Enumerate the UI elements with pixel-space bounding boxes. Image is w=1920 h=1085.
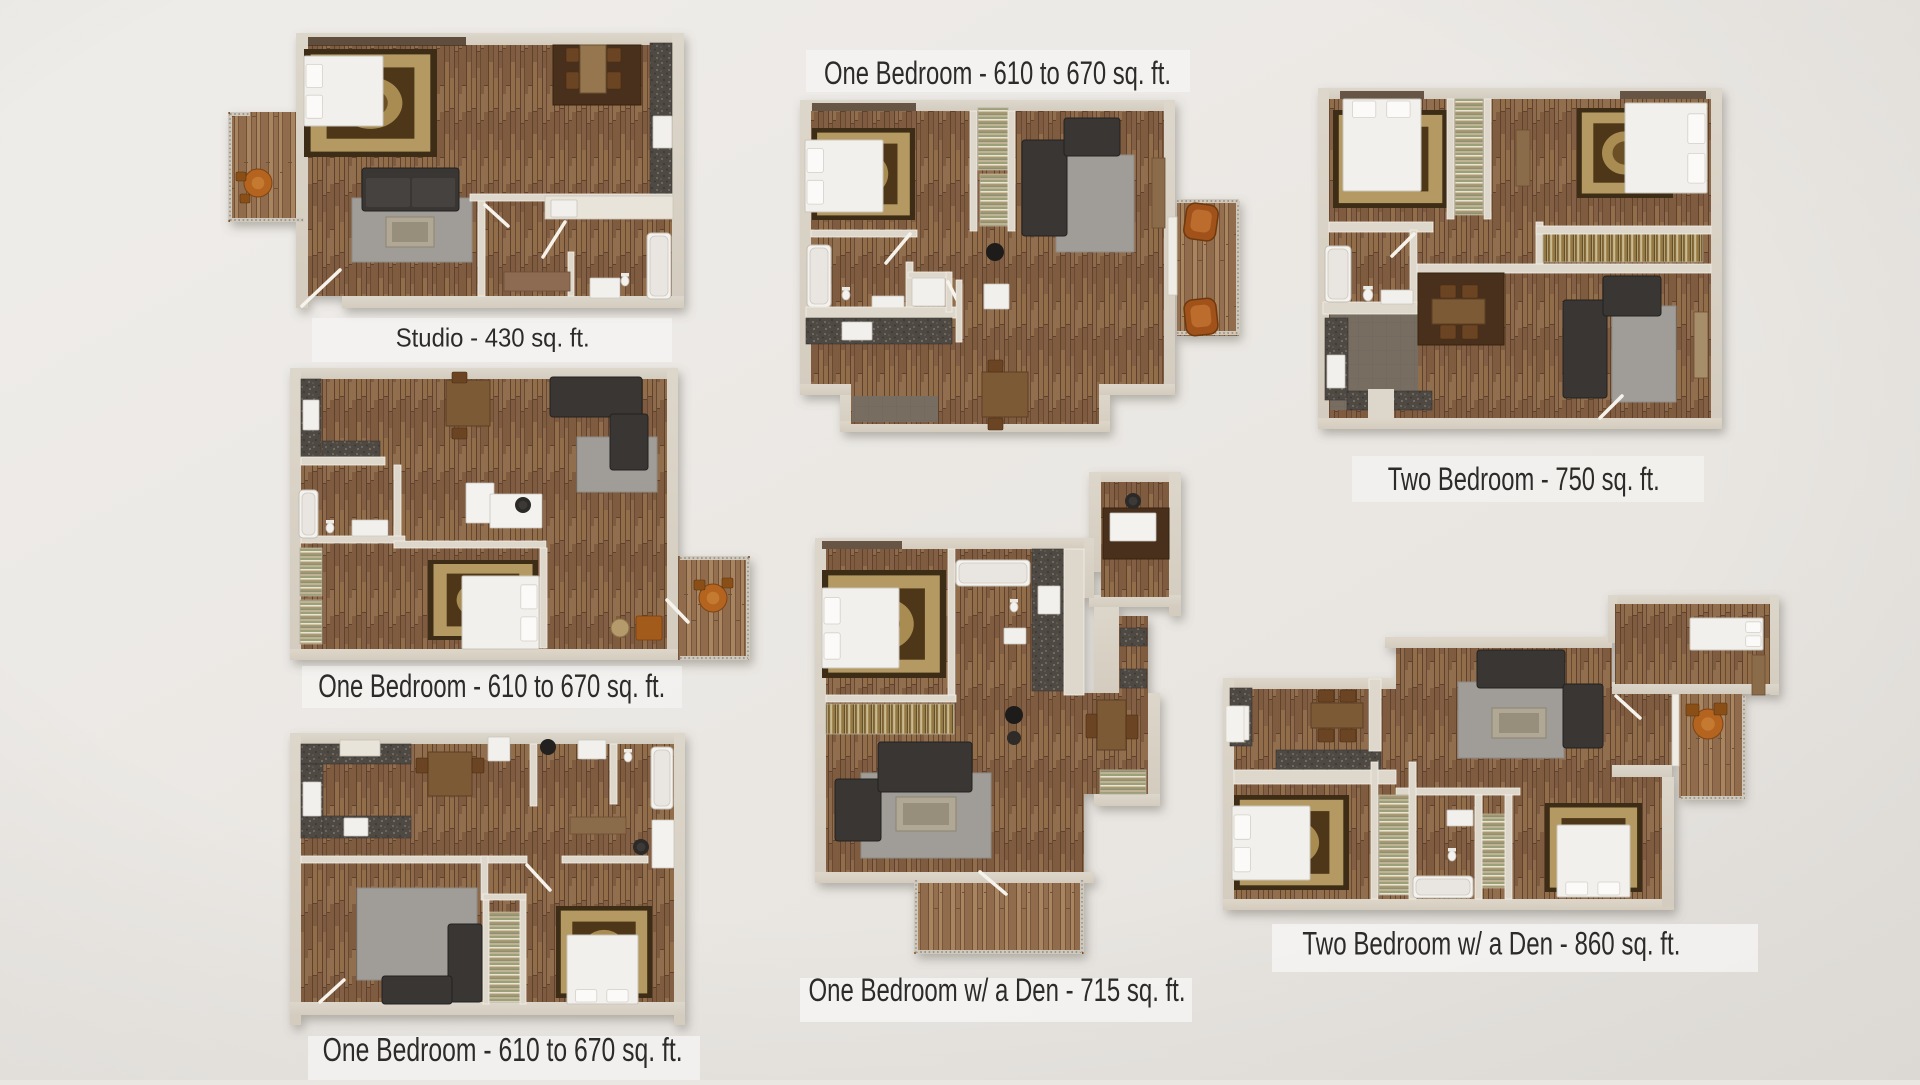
svg-text:One Bedroom - 610 to 670 sq. f: One Bedroom - 610 to 670 sq. ft. — [824, 55, 1171, 91]
svg-text:One Bedroom - 610 to 670 sq. f: One Bedroom - 610 to 670 sq. ft. — [318, 668, 665, 704]
svg-text:Two Bedroom - 750 sq. ft.: Two Bedroom - 750 sq. ft. — [1388, 461, 1660, 497]
svg-text:Two Bedroom w/ a Den - 860 sq.: Two Bedroom w/ a Den - 860 sq. ft. — [1302, 926, 1680, 962]
svg-text:One Bedroom - 610 to 670 sq. f: One Bedroom - 610 to 670 sq. ft. — [323, 1031, 683, 1068]
svg-text:One Bedroom w/ a Den - 715 sq.: One Bedroom w/ a Den - 715 sq. ft. — [809, 972, 1186, 1008]
svg-text:Studio - 430 sq. ft.: Studio - 430 sq. ft. — [396, 323, 590, 353]
